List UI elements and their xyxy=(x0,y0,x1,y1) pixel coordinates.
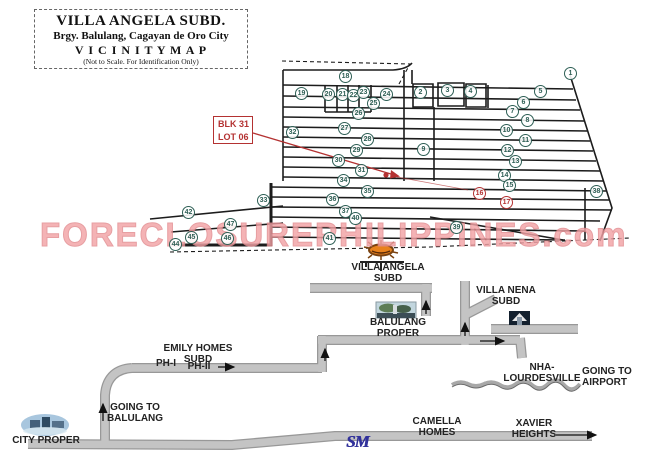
label-going-to-balulang: GOING TO BALULANG xyxy=(104,402,166,424)
label-ph2: PH-II xyxy=(184,361,214,372)
lot-marker-38: 38 xyxy=(590,185,603,198)
lot-marker-45: 45 xyxy=(185,231,198,244)
lot-marker-24: 24 xyxy=(380,88,393,101)
lot-marker-8: 8 xyxy=(521,114,534,127)
lot-marker-47: 47 xyxy=(224,218,237,231)
label-villa-nena-subd: VILLA NENA SUBD xyxy=(470,285,542,307)
lot-marker-15: 15 xyxy=(503,179,516,192)
lot-marker-23: 23 xyxy=(357,86,370,99)
lot-marker-13: 13 xyxy=(509,155,522,168)
lot-marker-28: 28 xyxy=(361,133,374,146)
lot-marker-layer: 1234567891011121314151617181920212223242… xyxy=(0,0,650,469)
lot-marker-17: 17 xyxy=(500,196,513,209)
lot-marker-7: 7 xyxy=(506,105,519,118)
lot-marker-19: 19 xyxy=(295,87,308,100)
lot-marker-25: 25 xyxy=(367,97,380,110)
label-going-to-airport: GOING TO AIRPORT xyxy=(582,366,650,388)
lot-marker-20: 20 xyxy=(322,88,335,101)
lot-marker-42: 42 xyxy=(182,206,195,219)
lot-marker-36: 36 xyxy=(326,193,339,206)
label-camella-homes: CAMELLA HOMES xyxy=(408,416,466,438)
lot-marker-31: 31 xyxy=(355,164,368,177)
lot-marker-46: 46 xyxy=(221,232,234,245)
lot-marker-34: 34 xyxy=(337,174,350,187)
label-nha-lourdesville: NHA- LOURDESVILLE xyxy=(498,362,586,384)
sm-mall-logo: SM xyxy=(346,432,369,452)
lot-marker-5: 5 xyxy=(534,85,547,98)
label-city-proper: CITY PROPER xyxy=(10,435,82,446)
lot-marker-32: 32 xyxy=(286,126,299,139)
label-xavier-heights: XAVIER HEIGHTS xyxy=(508,418,560,440)
lot-marker-6: 6 xyxy=(517,96,530,109)
lot-marker-1: 1 xyxy=(564,67,577,80)
lot-marker-35: 35 xyxy=(361,185,374,198)
lot-marker-33: 33 xyxy=(257,194,270,207)
lot-marker-27: 27 xyxy=(338,122,351,135)
lot-marker-9: 9 xyxy=(417,143,430,156)
lot-marker-4: 4 xyxy=(464,85,477,98)
lot-marker-40: 40 xyxy=(349,212,362,225)
lot-marker-16: 16 xyxy=(473,187,486,200)
lot-marker-29: 29 xyxy=(350,144,363,157)
lot-marker-3: 3 xyxy=(441,84,454,97)
lot-marker-26: 26 xyxy=(352,107,365,120)
lot-marker-10: 10 xyxy=(500,124,513,137)
lot-marker-41: 41 xyxy=(323,232,336,245)
lot-marker-39: 39 xyxy=(450,221,463,234)
lot-marker-44: 44 xyxy=(169,238,182,251)
lot-marker-30: 30 xyxy=(332,154,345,167)
label-villa-angela-subd: VILLA ANGELA SUBD xyxy=(340,262,436,284)
label-balulang-proper: BALULANG PROPER xyxy=(362,317,434,339)
label-ph1: PH-I xyxy=(153,358,179,369)
lot-marker-2: 2 xyxy=(414,86,427,99)
vicinity-map-page: VILLA ANGELA SUBD. Brgy. Balulang, Cagay… xyxy=(0,0,650,469)
lot-marker-11: 11 xyxy=(519,134,532,147)
lot-marker-18: 18 xyxy=(339,70,352,83)
